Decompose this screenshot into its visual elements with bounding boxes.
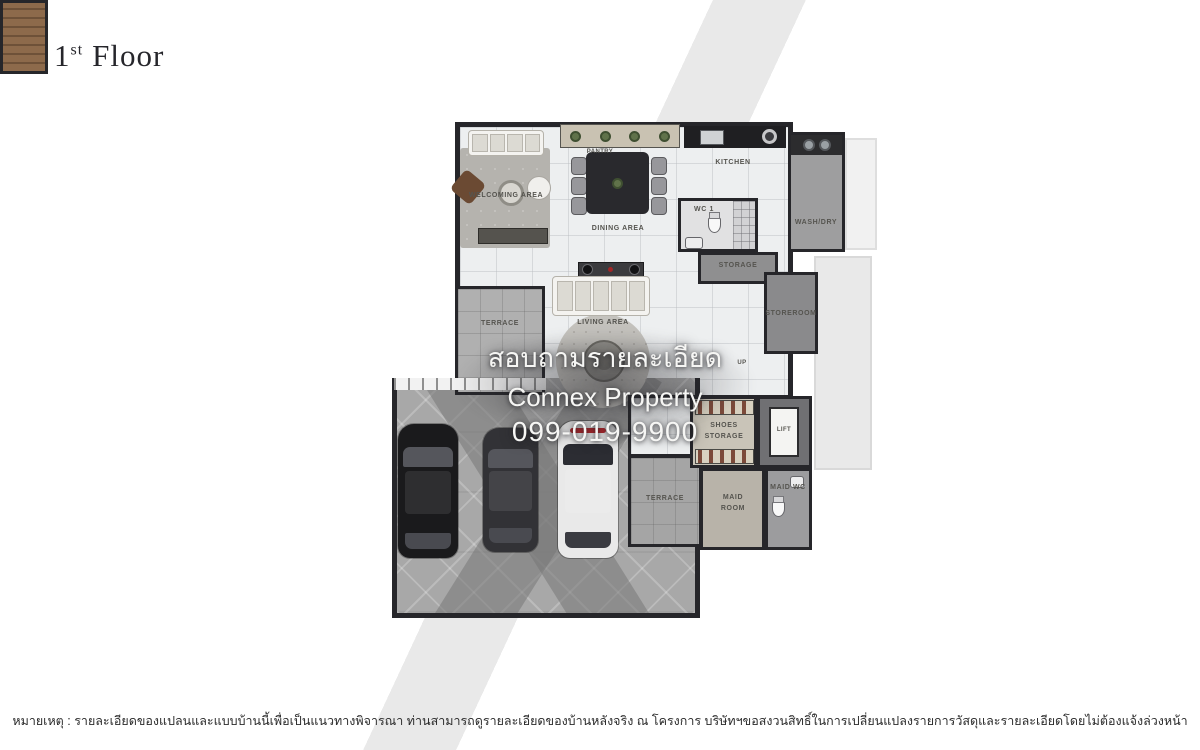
sofa-cushion <box>472 134 488 152</box>
staircase <box>0 0 48 74</box>
welcoming-sofa <box>468 130 544 156</box>
sofa-cushion <box>557 281 573 311</box>
dining-chair <box>651 177 667 195</box>
room-welcoming-label: WELCOMING AREA <box>464 190 548 201</box>
watermark-line-thai: สอบถามรายละเอียด <box>440 336 770 379</box>
sofa-cushion <box>525 134 541 152</box>
dining-chair <box>571 197 587 215</box>
car-windshield <box>488 449 533 468</box>
car-rear-window <box>565 532 612 548</box>
room-wc1-label: WC 1 <box>684 204 724 215</box>
car-roof <box>489 471 532 511</box>
plant-icon <box>570 131 581 142</box>
room-living-label: LIVING AREA <box>565 317 641 328</box>
washer-drum-icon <box>819 139 831 151</box>
toilet-icon <box>708 216 721 233</box>
sofa-cushion <box>629 281 645 311</box>
room-terrace-bottom-label: TERRACE <box>630 493 700 504</box>
dining-chair <box>651 197 667 215</box>
kitchen-hob-icon <box>762 129 777 144</box>
dining-table <box>586 152 649 214</box>
room-terrace-left-label: TERRACE <box>458 318 542 329</box>
room-kitchen-label: KITCHEN <box>689 157 777 168</box>
speaker-icon <box>629 264 640 275</box>
car-rear-window <box>405 533 452 549</box>
room-storage-label: STORAGE <box>700 260 776 271</box>
living-sofa <box>552 276 650 316</box>
tv-console <box>578 262 644 277</box>
power-led-icon <box>608 267 613 272</box>
sofa-cushion <box>611 281 627 311</box>
toilet-icon <box>772 500 785 517</box>
kitchen-sink-icon <box>700 130 724 145</box>
plant-icon <box>629 131 640 142</box>
room-lift-label: LIFT <box>766 426 802 436</box>
speaker-icon <box>582 264 593 275</box>
room-maid-label: MAID ROOM <box>711 492 755 514</box>
room-storeroom-label: STOREROOM <box>765 308 817 319</box>
plant-icon <box>600 131 611 142</box>
sofa-cushion <box>507 134 523 152</box>
sofa-cushion <box>575 281 591 311</box>
sofa-cushion <box>490 134 506 152</box>
sink-icon <box>685 237 703 249</box>
room-maid-wc-label: MAID WC <box>768 482 808 493</box>
shower-tiles <box>733 201 755 249</box>
dining-chair <box>571 157 587 175</box>
plant-icon <box>612 178 623 189</box>
watermark-line-phone: 099-019-9900 <box>440 416 770 448</box>
car-windshield <box>403 447 452 467</box>
plant-icon <box>659 131 670 142</box>
pantry-counter <box>560 124 680 148</box>
welcoming-console <box>478 228 548 244</box>
washer-drum-icon <box>803 139 815 151</box>
dining-chair <box>571 177 587 195</box>
room-washdry-label: WASH/DRY <box>789 217 843 228</box>
car-roof <box>565 469 612 513</box>
room-dining-label: DINING AREA <box>580 223 656 234</box>
disclaimer-note: หมายเหตุ : รายละเอียดของแปลนและแบบบ้านนี… <box>0 711 1200 731</box>
watermark-line-brand: Connex Property <box>440 382 770 413</box>
dining-chair <box>651 157 667 175</box>
shoe-shelf <box>695 449 754 464</box>
watermark: สอบถามรายละเอียด Connex Property 099-019… <box>440 336 770 448</box>
washing-machines-icon <box>791 135 842 155</box>
sofa-cushion <box>593 281 609 311</box>
room-pantry-label: PANTRY <box>550 148 650 158</box>
car-rear-window <box>489 528 532 543</box>
car-roof <box>405 471 452 514</box>
